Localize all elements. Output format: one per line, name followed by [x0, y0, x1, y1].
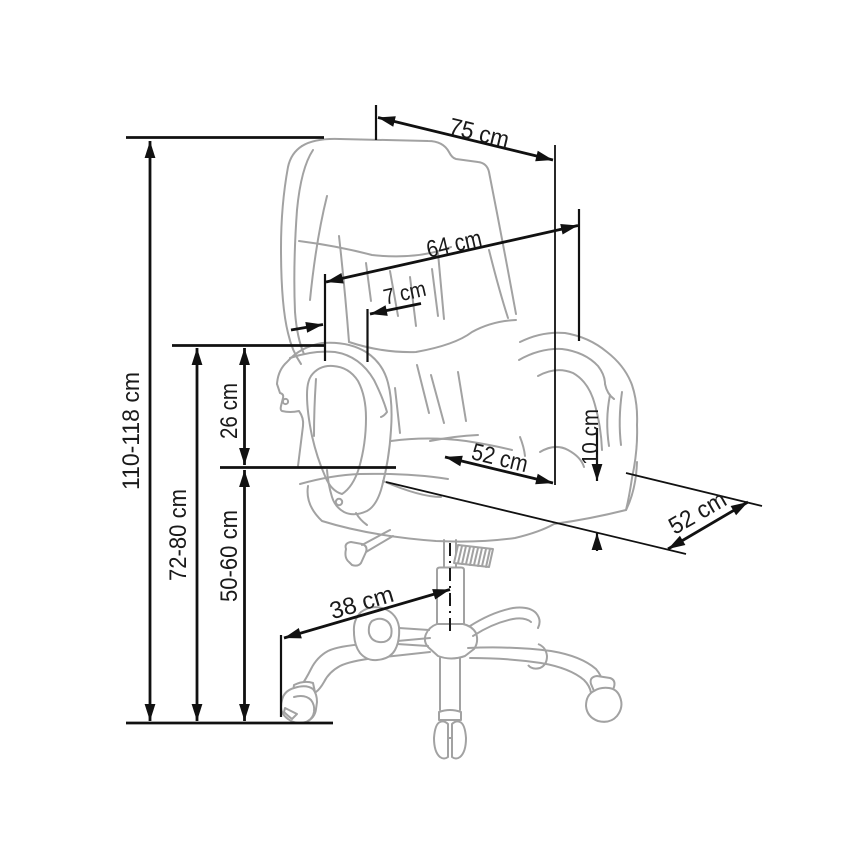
svg-text:50-60 cm: 50-60 cm: [216, 510, 243, 602]
svg-text:110-118 cm: 110-118 cm: [118, 372, 145, 490]
svg-text:10 cm: 10 cm: [577, 409, 603, 465]
svg-text:72-80 cm: 72-80 cm: [165, 489, 192, 581]
svg-text:26 cm: 26 cm: [216, 383, 243, 439]
